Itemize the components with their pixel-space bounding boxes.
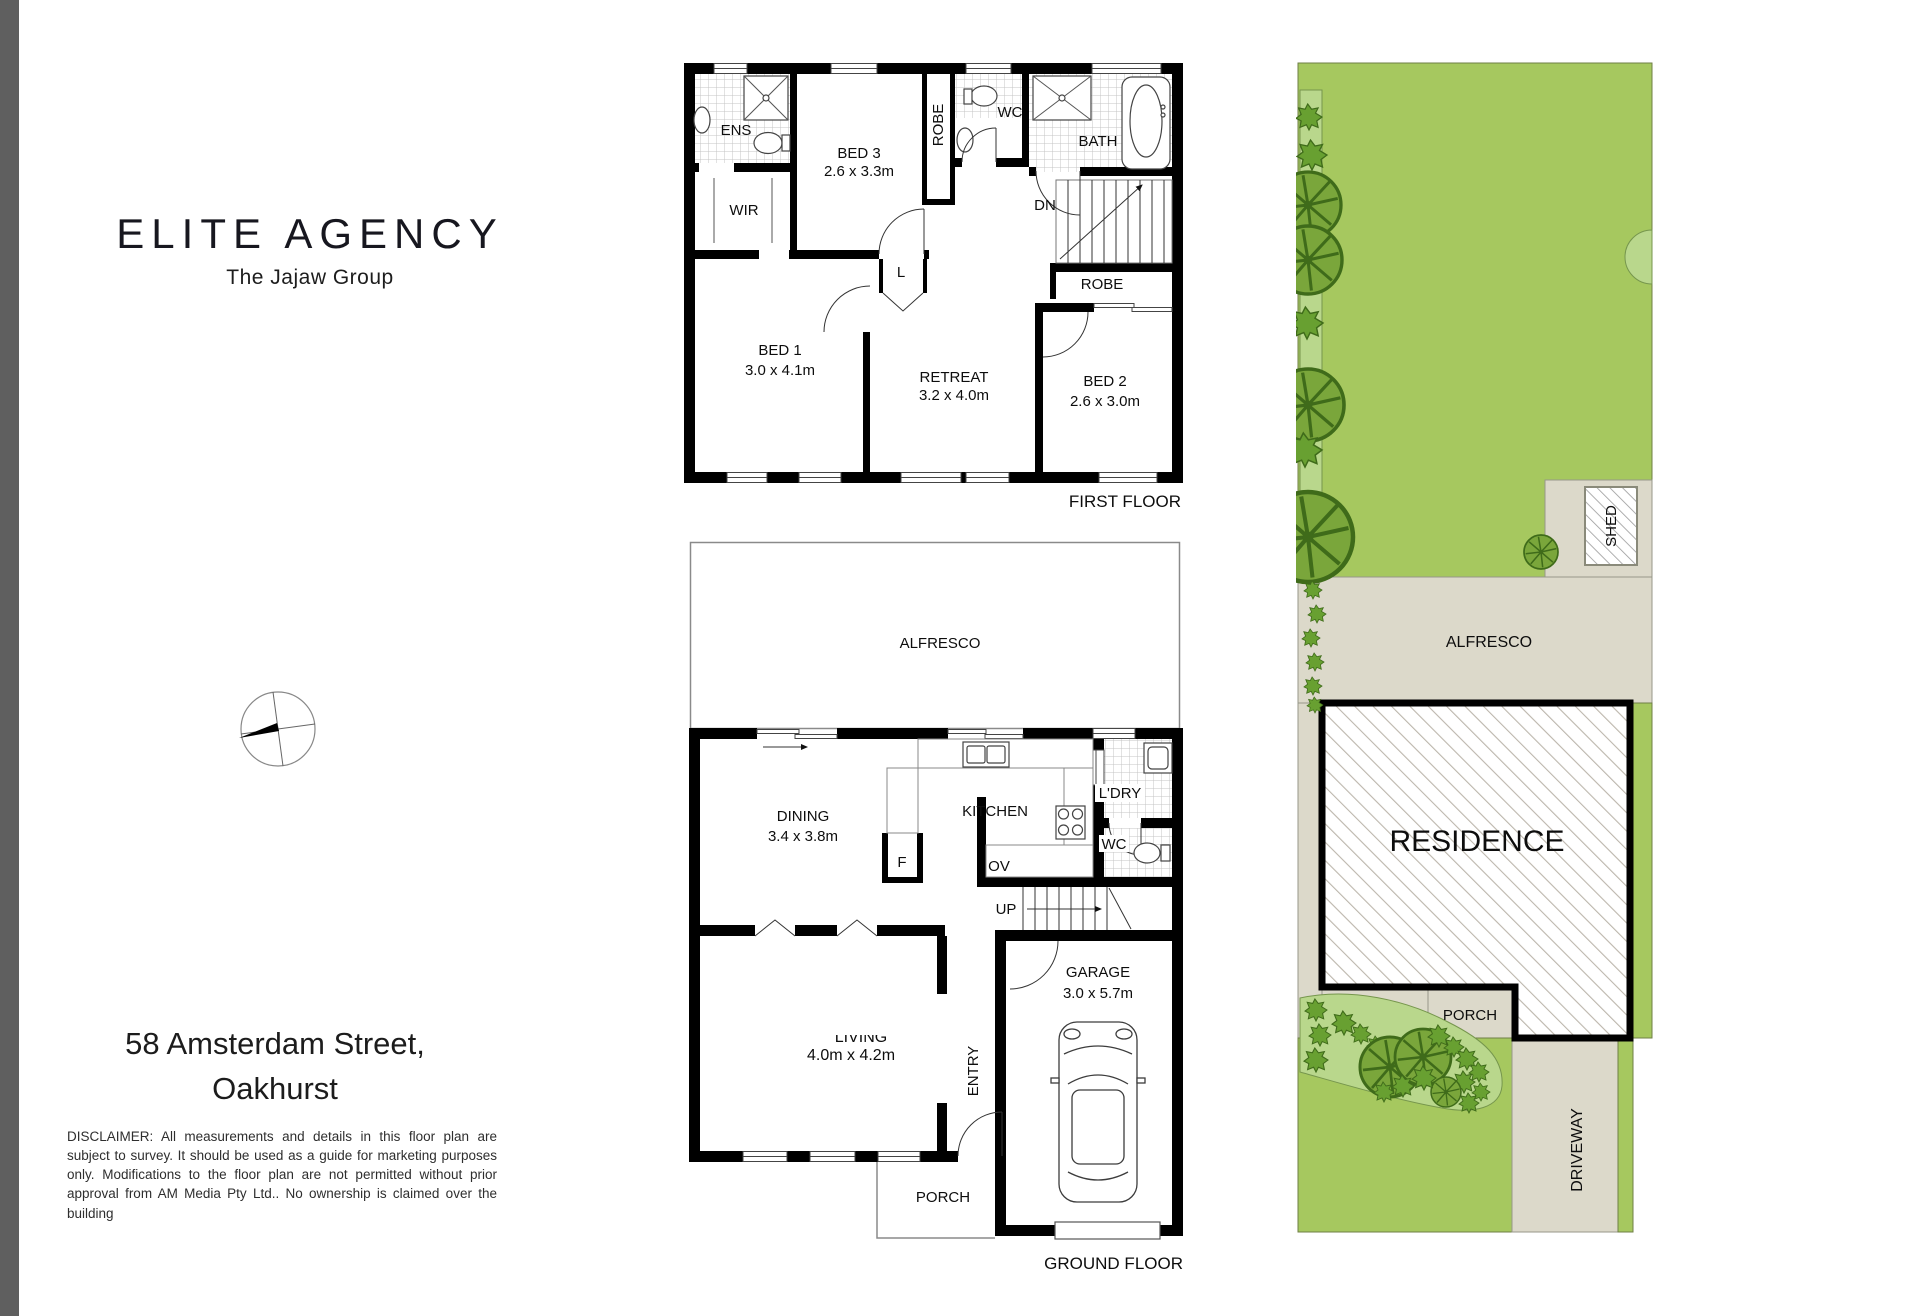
- gf-label-living-dims: 4.0m x 4.2m: [807, 1047, 895, 1064]
- gf-label-dining-dims: 3.4 x 3.8m: [768, 828, 838, 845]
- address-line2: Oakhurst: [60, 1067, 490, 1112]
- address-line1: 58 Amsterdam Street,: [60, 1022, 490, 1067]
- ff-label-linen: L: [897, 264, 905, 281]
- ff-label-bed1: BED 1: [758, 342, 801, 359]
- property-address: 58 Amsterdam Street, Oakhurst: [60, 1022, 490, 1112]
- site-label-driveway: DRIVEWAY: [1569, 1108, 1586, 1192]
- gf-label-up: UP: [996, 901, 1017, 918]
- site-label-shed: SHED: [1603, 505, 1620, 547]
- agency-branding: ELITE AGENCY The Jajaw Group: [90, 210, 530, 290]
- site-label-residence: RESIDENCE: [1389, 825, 1564, 858]
- ff-label-retreat-dims: 3.2 x 4.0m: [919, 387, 989, 404]
- agency-tagline: The Jajaw Group: [90, 266, 530, 290]
- ff-label-ens: ENS: [721, 122, 752, 139]
- ff-label-bed2-dims: 2.6 x 3.0m: [1070, 393, 1140, 410]
- ff-stairs: [1056, 180, 1172, 263]
- left-gray-bar: [0, 0, 19, 1316]
- ff-label-wir: WIR: [729, 202, 758, 219]
- gf-label-alfresco: ALFRESCO: [900, 635, 981, 652]
- ff-label-wc: WC: [998, 104, 1023, 121]
- gf-label-kitchen: KITCHEN: [962, 803, 1028, 820]
- gf-stairs: [1023, 887, 1131, 930]
- gf-label-porch: PORCH: [916, 1189, 970, 1206]
- ff-label-dn: DN: [1034, 197, 1056, 214]
- ff-label-bath: BATH: [1079, 133, 1118, 150]
- site-label-alfresco: ALFRESCO: [1446, 634, 1532, 651]
- ff-label-robe-top: ROBE: [930, 104, 947, 147]
- ff-label-bed1-dims: 3.0 x 4.1m: [745, 362, 815, 379]
- site-label-porch: PORCH: [1443, 1007, 1497, 1024]
- gf-label-fridge: F: [897, 854, 906, 871]
- gf-label-garage: GARAGE: [1066, 964, 1130, 981]
- gf-label-garage-dims: 3.0 x 5.7m: [1063, 985, 1133, 1002]
- first-floor-plan: ENS WIR BED 3 2.6 x 3.3m ROBE WC BATH DN…: [684, 63, 1184, 515]
- agency-logo: ELITE AGENCY: [90, 210, 530, 258]
- ff-label-retreat: RETREAT: [920, 369, 989, 386]
- disclaimer-text: DISCLAIMER: All measurements and details…: [67, 1127, 497, 1223]
- gf-label-dining: DINING: [777, 808, 830, 825]
- gf-label-oven: OV: [988, 858, 1010, 875]
- ff-label-bed3: BED 3: [837, 145, 880, 162]
- gf-living-label-clip: [821, 1025, 901, 1035]
- first-floor-title: FIRST FLOOR: [1069, 492, 1181, 511]
- gf-label-entry: ENTRY: [965, 1046, 982, 1097]
- ground-floor-plan: ALFRESCO DINING 3.4 x 3.8m F KITCHEN OV …: [689, 540, 1183, 1272]
- ff-label-bed3-dims: 2.6 x 3.3m: [824, 163, 894, 180]
- ff-label-bed2: BED 2: [1083, 373, 1126, 390]
- site-plan: SHED ALFRESCO RESIDENCE PORCH DRIVEWAY: [1296, 60, 1654, 1234]
- car-icon: [1051, 1022, 1145, 1202]
- residence-footprint: [1322, 703, 1630, 1038]
- compass-icon: [236, 685, 320, 773]
- floorplan-sheet: ELITE AGENCY The Jajaw Group 58 Amsterda…: [0, 0, 1920, 1316]
- gf-label-wc: WC: [1102, 836, 1127, 853]
- ff-label-robe-right: ROBE: [1081, 276, 1124, 293]
- gf-label-laundry: L'DRY: [1099, 785, 1142, 802]
- ground-floor-title: GROUND FLOOR: [1044, 1254, 1183, 1272]
